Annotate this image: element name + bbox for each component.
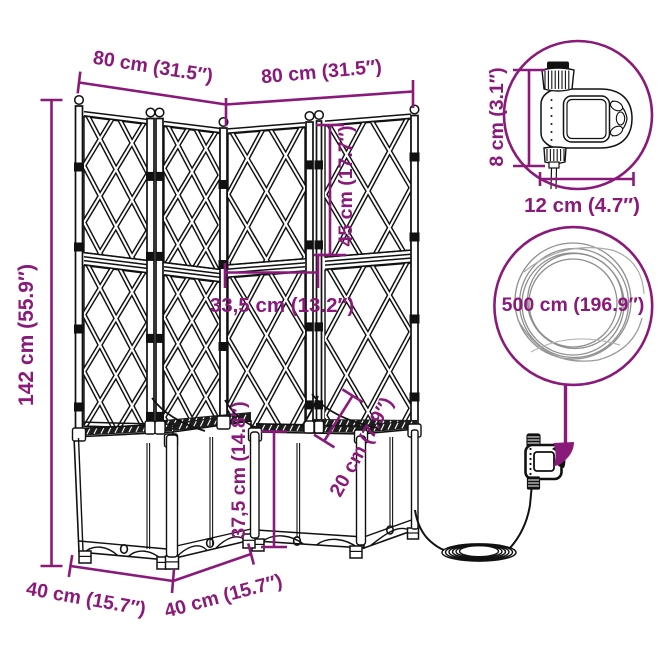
svg-text:142 cm (55.9″): 142 cm (55.9″) — [15, 264, 38, 406]
svg-text:37,5 cm (14.8″): 37,5 cm (14.8″) — [228, 401, 250, 538]
svg-text:45 cm (17.7″): 45 cm (17.7″) — [335, 126, 357, 247]
svg-text:12 cm (4.7″): 12 cm (4.7″) — [524, 194, 640, 217]
svg-text:33,5 cm (13.2″): 33,5 cm (13.2″) — [210, 294, 354, 317]
svg-text:500 cm (196.9″): 500 cm (196.9″) — [502, 294, 645, 316]
